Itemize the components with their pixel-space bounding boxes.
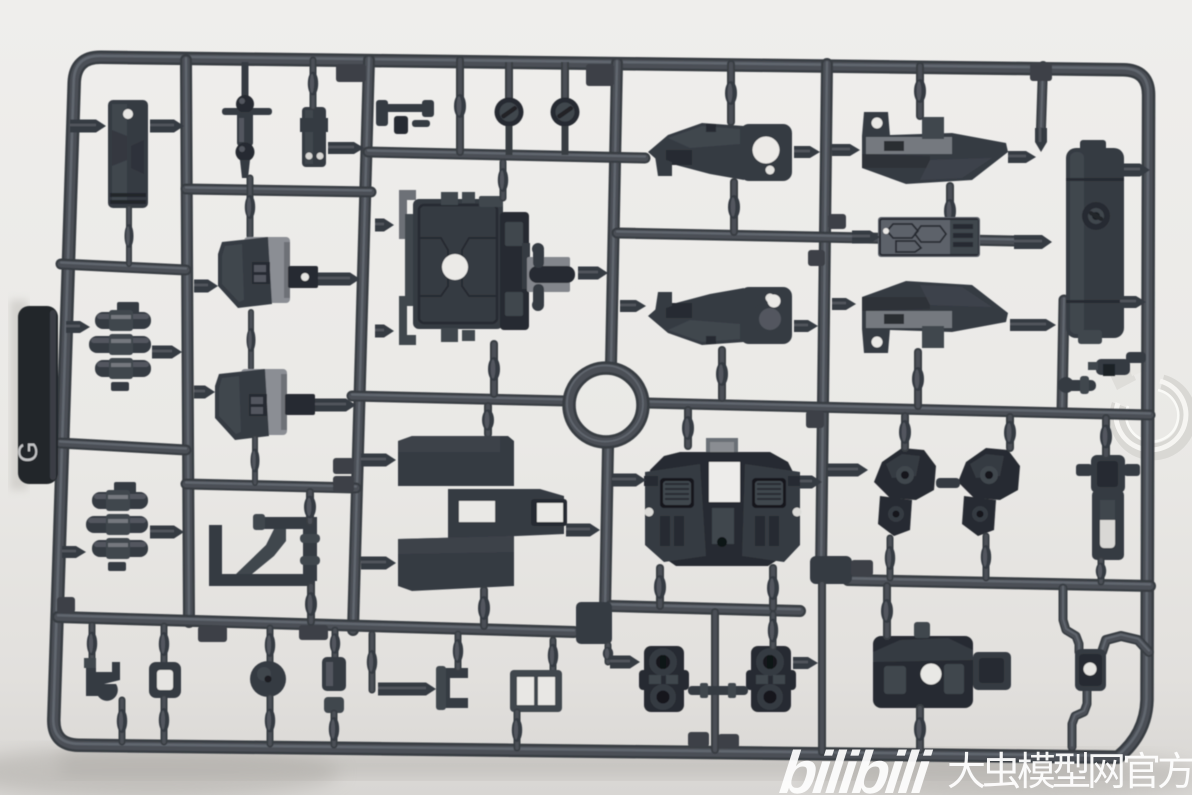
svg-text:G: G	[13, 441, 43, 462]
svg-text:大虫模型网官方: 大虫模型网官方	[947, 751, 1192, 794]
svg-text:bilibili: bilibili	[776, 738, 934, 795]
